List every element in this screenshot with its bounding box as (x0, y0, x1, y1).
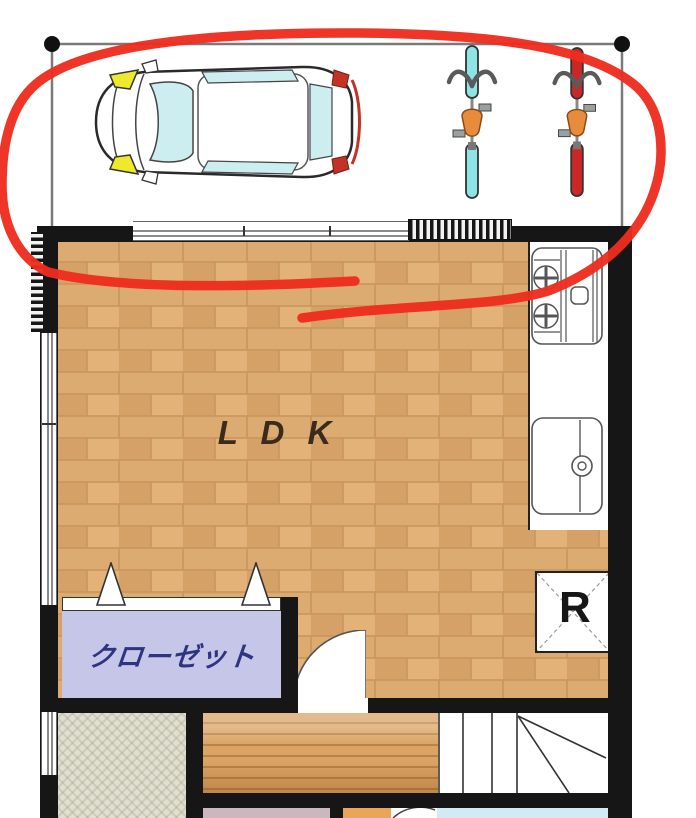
window-left-3 (41, 712, 57, 775)
window-left-1 (41, 333, 57, 555)
sink-icon (530, 416, 604, 516)
wall-bottom-divider (330, 808, 343, 818)
window-left-2 (41, 555, 57, 605)
wall-hall-bottom (203, 793, 632, 808)
folding-door-icon (240, 562, 272, 606)
staircase (438, 713, 608, 793)
floor-plan-canvas: L D K R クローゼット (0, 0, 696, 818)
wall-closet-right (281, 597, 298, 713)
room-orange (343, 808, 391, 818)
door-swing-icon (294, 630, 366, 700)
room-mauve (203, 808, 330, 818)
red-circle-annotation (0, 20, 696, 330)
folding-door-icon (95, 562, 127, 606)
refrigerator-box: R (535, 571, 611, 653)
refrigerator-label: R (559, 586, 591, 630)
closet: クローゼット (62, 611, 281, 698)
door-gap (296, 698, 368, 713)
door-swing-small-icon (391, 808, 437, 818)
closet-label: クローゼット (85, 635, 257, 674)
wall-tatami-hall (186, 713, 203, 818)
room-blue (437, 808, 608, 818)
tatami-floor (57, 713, 187, 818)
ldk-room-label: L D K (188, 414, 368, 452)
hallway-floor (203, 713, 438, 793)
